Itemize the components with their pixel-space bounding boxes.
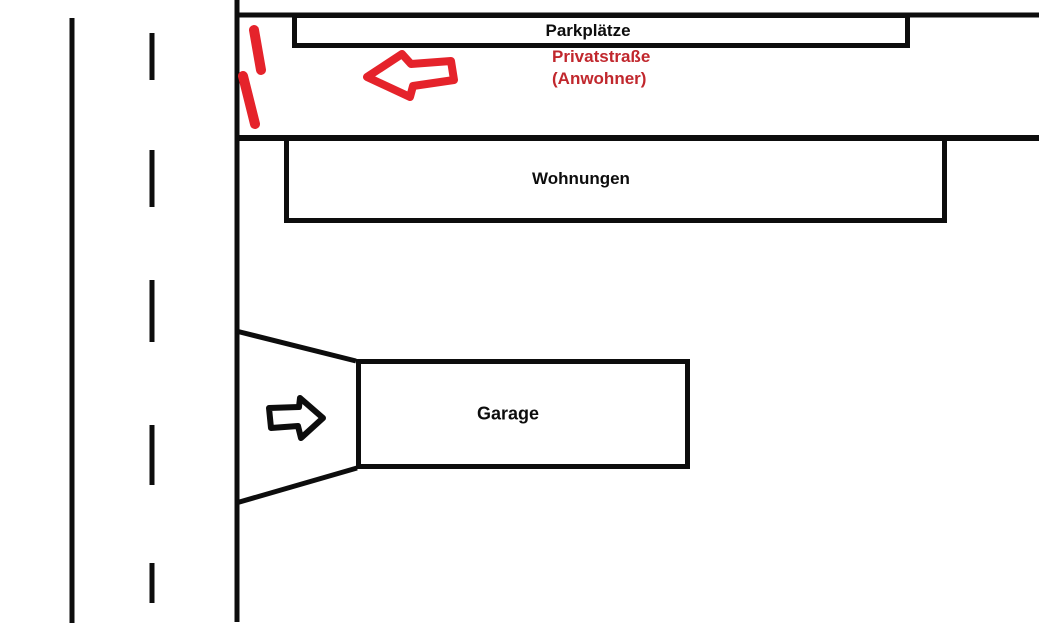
sketch-lines bbox=[0, 0, 1039, 626]
garage-label: Garage bbox=[477, 404, 539, 425]
wohnungen-label: Wohnungen bbox=[532, 169, 630, 189]
right-arrow-icon bbox=[269, 398, 323, 438]
private-street-label: Privatstraße (Anwohner) bbox=[552, 46, 650, 90]
parkplaetze-label: Parkplätze bbox=[545, 21, 630, 41]
paint-sketch-canvas: Parkplätze Wohnungen Garage Privatstraße… bbox=[0, 0, 1039, 626]
red-dash-top bbox=[254, 30, 261, 70]
garage-box: Garage bbox=[356, 359, 690, 469]
left-arrow-icon bbox=[367, 54, 454, 97]
red-dash-bottom bbox=[243, 76, 255, 124]
driveway-top-line bbox=[236, 331, 356, 361]
private-street-label-line2: (Anwohner) bbox=[552, 68, 650, 90]
driveway-bottom-line bbox=[236, 468, 357, 503]
private-street-label-line1: Privatstraße bbox=[552, 46, 650, 68]
parkplaetze-box: Parkplätze bbox=[292, 13, 910, 48]
red-dash-marks bbox=[243, 30, 261, 124]
wohnungen-box: Wohnungen bbox=[284, 135, 947, 223]
